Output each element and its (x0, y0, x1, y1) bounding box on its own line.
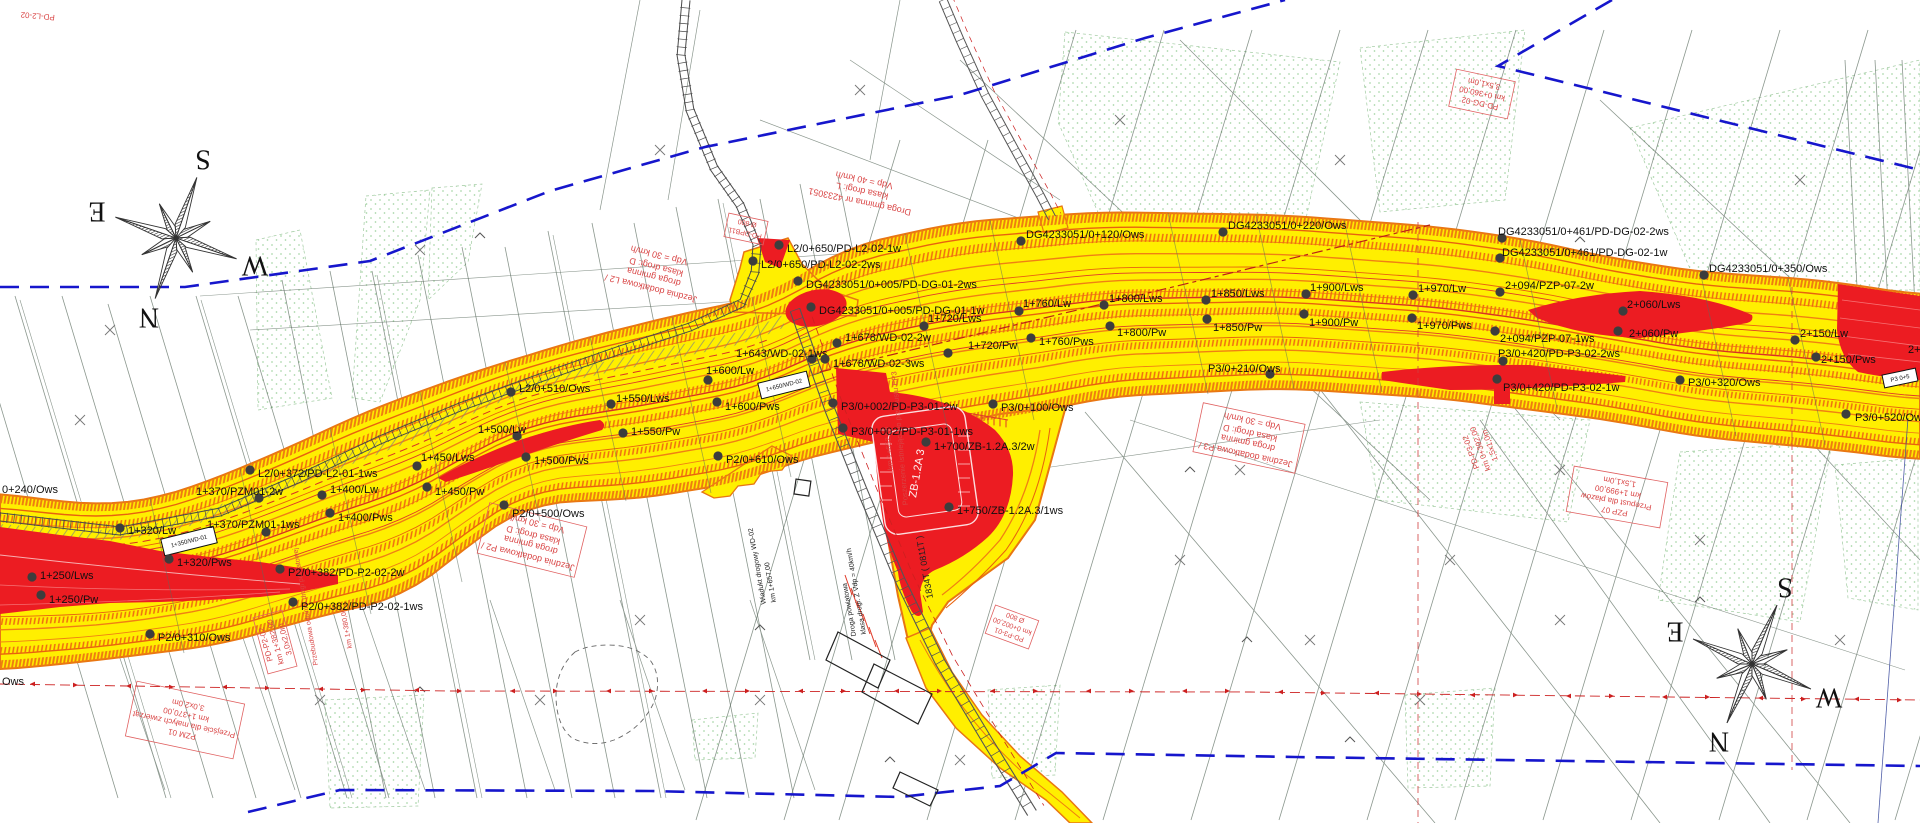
svg-text:S: S (1777, 572, 1793, 603)
svg-text:E: E (1666, 616, 1683, 647)
svg-text:DG4233051/0+005/PD-DG-01-2ws: DG4233051/0+005/PD-DG-01-2ws (806, 279, 977, 291)
svg-text:2+150/Pws: 2+150/Pws (1821, 354, 1876, 366)
svg-text:P3/0+420/PD-P3-02-1w: P3/0+420/PD-P3-02-1w (1503, 382, 1620, 394)
svg-text:2+060/Lws: 2+060/Lws (1627, 299, 1681, 311)
svg-text:W: W (1815, 682, 1842, 713)
svg-text:1+900/Pw: 1+900/Pw (1309, 317, 1358, 329)
svg-text:P3/0+210/Ows: P3/0+210/Ows (1208, 363, 1281, 375)
svg-text:L2/0+372/PD-L2-01-1ws: L2/0+372/PD-L2-01-1ws (258, 468, 378, 480)
svg-text:P3/0+520/Ows: P3/0+520/Ows (1855, 412, 1920, 424)
svg-text:0+240/Ows: 0+240/Ows (2, 484, 58, 496)
svg-text:1+720/Pw: 1+720/Pw (968, 340, 1017, 352)
svg-text:1+500/Pws: 1+500/Pws (534, 455, 589, 467)
svg-text:1+720/Lws: 1+720/Lws (928, 313, 982, 325)
svg-text:1+450/Lws: 1+450/Lws (421, 452, 475, 464)
svg-text:W: W (241, 250, 268, 281)
svg-text:1+250/Lws: 1+250/Lws (40, 570, 94, 582)
svg-text:1+550/Pw: 1+550/Pw (631, 426, 680, 438)
svg-text:1+678/WD-02-3ws: 1+678/WD-02-3ws (833, 358, 925, 370)
svg-text:S: S (195, 144, 211, 175)
svg-text:DG4233051/0+461/PD-DG-02-1w: DG4233051/0+461/PD-DG-02-1w (1502, 247, 1667, 259)
svg-text:DG4233051/0+461/PD-DG-02-2ws: DG4233051/0+461/PD-DG-02-2ws (1498, 226, 1669, 238)
svg-text:P3/0+320/Ows: P3/0+320/Ows (1688, 377, 1761, 389)
svg-text:P2/0+610/Ows: P2/0+610/Ows (726, 454, 799, 466)
svg-text:P3/0+002/PD-P3-01-1ws: P3/0+002/PD-P3-01-1ws (851, 426, 973, 438)
svg-text:1+760/Pws: 1+760/Pws (1039, 336, 1094, 348)
svg-text:1+370/PZM01-1ws: 1+370/PZM01-1ws (207, 519, 300, 531)
svg-text:2+060/Pw: 2+060/Pw (1629, 328, 1678, 340)
svg-text:1+750/ZB-1.2A.3/1ws: 1+750/ZB-1.2A.3/1ws (957, 505, 1064, 517)
svg-text:1+400/Pws: 1+400/Pws (338, 512, 393, 524)
svg-text:1+643/WD-02-1ws: 1+643/WD-02-1ws (736, 348, 828, 360)
svg-text:P2/0+500/Ows: P2/0+500/Ows (512, 508, 585, 520)
svg-text:1+800/Pw: 1+800/Pw (1117, 327, 1166, 339)
svg-text:1+500/Lw: 1+500/Lw (478, 424, 526, 436)
svg-text:DG4233051/0+350/Ows: DG4233051/0+350/Ows (1709, 263, 1828, 275)
svg-text:1+800/Lws: 1+800/Lws (1109, 293, 1163, 305)
svg-text:1+450/Pw: 1+450/Pw (435, 486, 484, 498)
svg-text:1+850/Pw: 1+850/Pw (1213, 322, 1262, 334)
svg-text:P2/0+310/Ows: P2/0+310/Ows (158, 632, 231, 644)
svg-text:DG4233051/0+120/Ows: DG4233051/0+120/Ows (1026, 229, 1145, 241)
svg-text:1+970/Lw: 1+970/Lw (1418, 283, 1466, 295)
svg-text:2+150/Lw: 2+150/Lw (1800, 328, 1848, 340)
svg-text:P2/0+382/PD-P2-02-1ws: P2/0+382/PD-P2-02-1ws (301, 601, 423, 613)
svg-text:N: N (139, 302, 159, 333)
svg-text:1+850/Lws: 1+850/Lws (1211, 288, 1265, 300)
svg-text:E: E (88, 196, 105, 227)
svg-text:1+400/Lw: 1+400/Lw (330, 484, 378, 496)
svg-text:1+320/Pws: 1+320/Pws (177, 557, 232, 569)
svg-text:1+600/Pws: 1+600/Pws (725, 401, 780, 413)
svg-text:2+094/PZP-07-1ws: 2+094/PZP-07-1ws (1500, 333, 1595, 345)
svg-text:1+600/Lw: 1+600/Lw (706, 365, 754, 377)
svg-text:1+970/Pws: 1+970/Pws (1417, 320, 1472, 332)
svg-text:P3/0+002/PD-P3-01-2w: P3/0+002/PD-P3-01-2w (841, 401, 958, 413)
svg-text:2+094/PZP-07-2w: 2+094/PZP-07-2w (1505, 280, 1594, 292)
svg-text:2+: 2+ (1908, 344, 1920, 356)
svg-text:L2/0+650/PD-L2-02-1w: L2/0+650/PD-L2-02-1w (787, 243, 901, 255)
svg-text:P3/0+100/Ows: P3/0+100/Ows (1001, 402, 1074, 414)
svg-text:P2/0+382/PD-P2-02-2w: P2/0+382/PD-P2-02-2w (288, 567, 405, 579)
svg-text:P3/0+420/PD-P3-02-2ws: P3/0+420/PD-P3-02-2ws (1498, 348, 1620, 360)
svg-text:L2/0+650/PD-L2-02-2ws: L2/0+650/PD-L2-02-2ws (761, 259, 881, 271)
svg-text:1+550/Lws: 1+550/Lws (616, 393, 670, 405)
svg-text:1+900/Lws: 1+900/Lws (1310, 282, 1364, 294)
svg-text:1+370/PZM01-2w: 1+370/PZM01-2w (196, 486, 283, 498)
svg-text:1+678/WD-02-2w: 1+678/WD-02-2w (845, 332, 931, 344)
svg-text:1+760/Lw: 1+760/Lw (1023, 298, 1071, 310)
svg-text:Ows: Ows (2, 676, 25, 688)
svg-text:1+250/Pw: 1+250/Pw (49, 594, 98, 606)
svg-text:N: N (1709, 726, 1729, 757)
svg-text:L2/0+510/Ows: L2/0+510/Ows (519, 383, 591, 395)
svg-text:1+320/Lw: 1+320/Lw (128, 525, 176, 537)
svg-text:DG4233051/0+220/Ows: DG4233051/0+220/Ows (1228, 220, 1347, 232)
svg-text:1+700/ZB-1.2A.3/2w: 1+700/ZB-1.2A.3/2w (934, 441, 1035, 453)
